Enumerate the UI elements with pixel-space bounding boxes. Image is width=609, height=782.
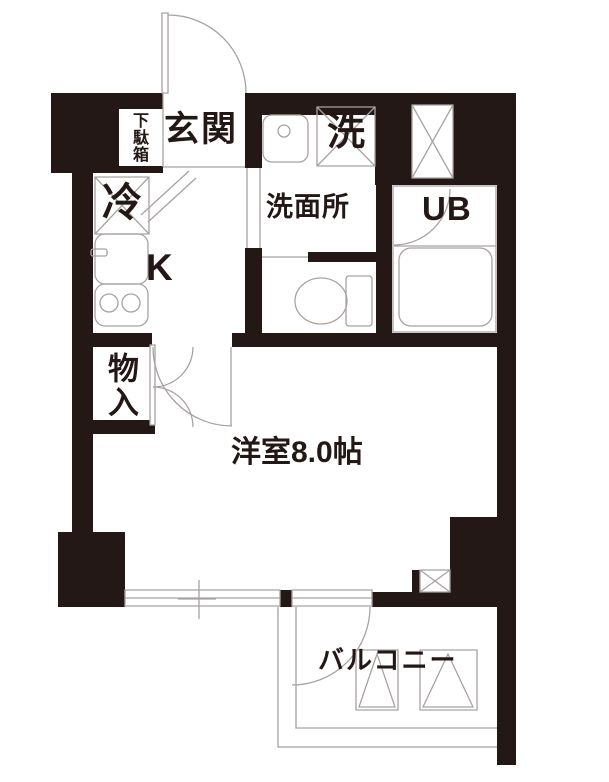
pipe-space-bottom [420,570,450,592]
washroom-doorway [247,168,260,248]
linework-overlay [0,0,609,782]
window-right [292,590,372,606]
main-room-label: 洋室8.0帖 [231,438,363,468]
kitchen-door [153,347,232,426]
window-left [125,590,280,606]
refrigerator-label: 冷 [95,183,149,223]
pipe-space-top [412,105,453,178]
entrance-door [162,13,246,93]
washing-machine-label: 洗 [317,114,375,152]
floorplan-canvas: 玄関 下駄箱 冷 K 洗面所 洗 UB 物入 洋室8.0帖 バルコニー [0,0,609,782]
toilet [295,276,372,326]
storage-label: 物入 [105,352,136,420]
kitchen-stove [95,284,148,326]
kitchen-sink [91,234,148,284]
kitchen-label: K [146,249,174,286]
shoe-cabinet-label: 下駄箱 [130,112,146,163]
unit-bath-label: UB [422,192,472,225]
washbasin [263,115,308,162]
washroom-label: 洗面所 [266,194,350,221]
entrance-label: 玄関 [164,112,238,147]
storage-doors [150,345,193,427]
window-center-mark [178,580,216,619]
balcony-label: バルコニー [318,647,457,673]
balcony-outline [278,607,497,747]
